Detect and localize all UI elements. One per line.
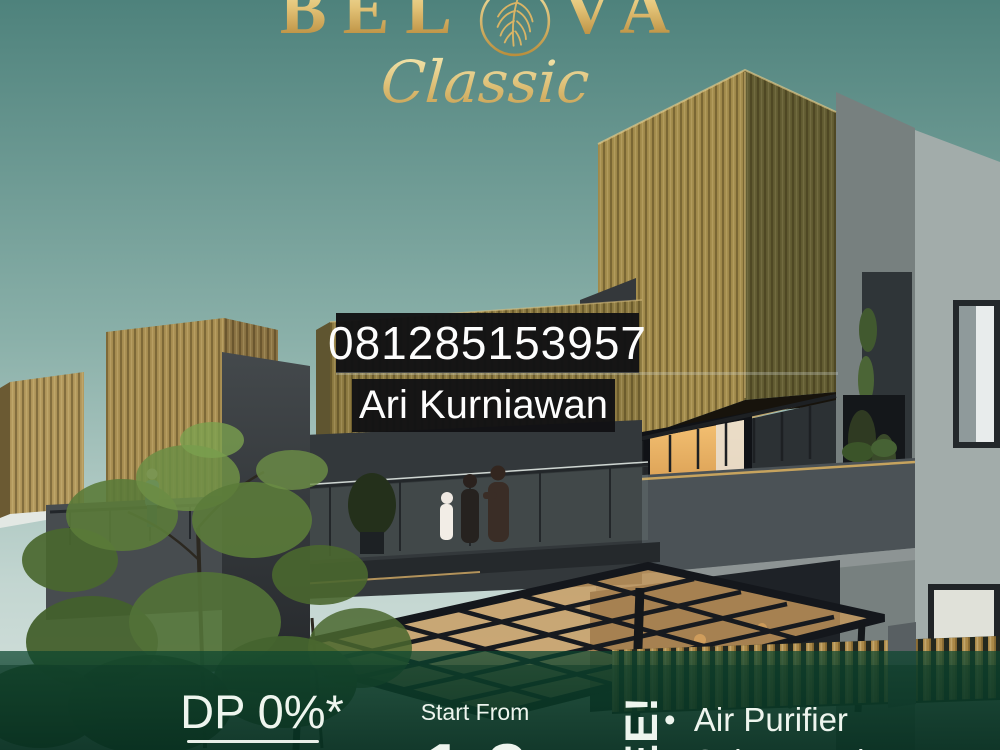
phone-number-box: 081285153957: [336, 313, 639, 373]
dp-offer-label: DP 0%*: [150, 684, 374, 739]
free-label: FREE!: [616, 696, 668, 750]
free-item-air-purifier: Air Purifier: [664, 701, 848, 739]
divider-line: [336, 372, 838, 375]
advert-poster: BEL VA Classic 081285153957 Ari Kurniawa…: [0, 0, 1000, 750]
price-value: 1.9: [393, 726, 557, 750]
agent-name: Ari Kurniawan: [359, 383, 608, 428]
agent-name-box: Ari Kurniawan: [352, 379, 615, 432]
dp-underline: [187, 740, 319, 743]
free-item-solar-panel: Solar Panel: [664, 743, 865, 750]
brand-tagline: Classic: [0, 48, 972, 118]
start-from-label: Start From: [393, 699, 557, 726]
upper-window: [953, 300, 1000, 448]
phone-number: 081285153957: [328, 316, 647, 370]
